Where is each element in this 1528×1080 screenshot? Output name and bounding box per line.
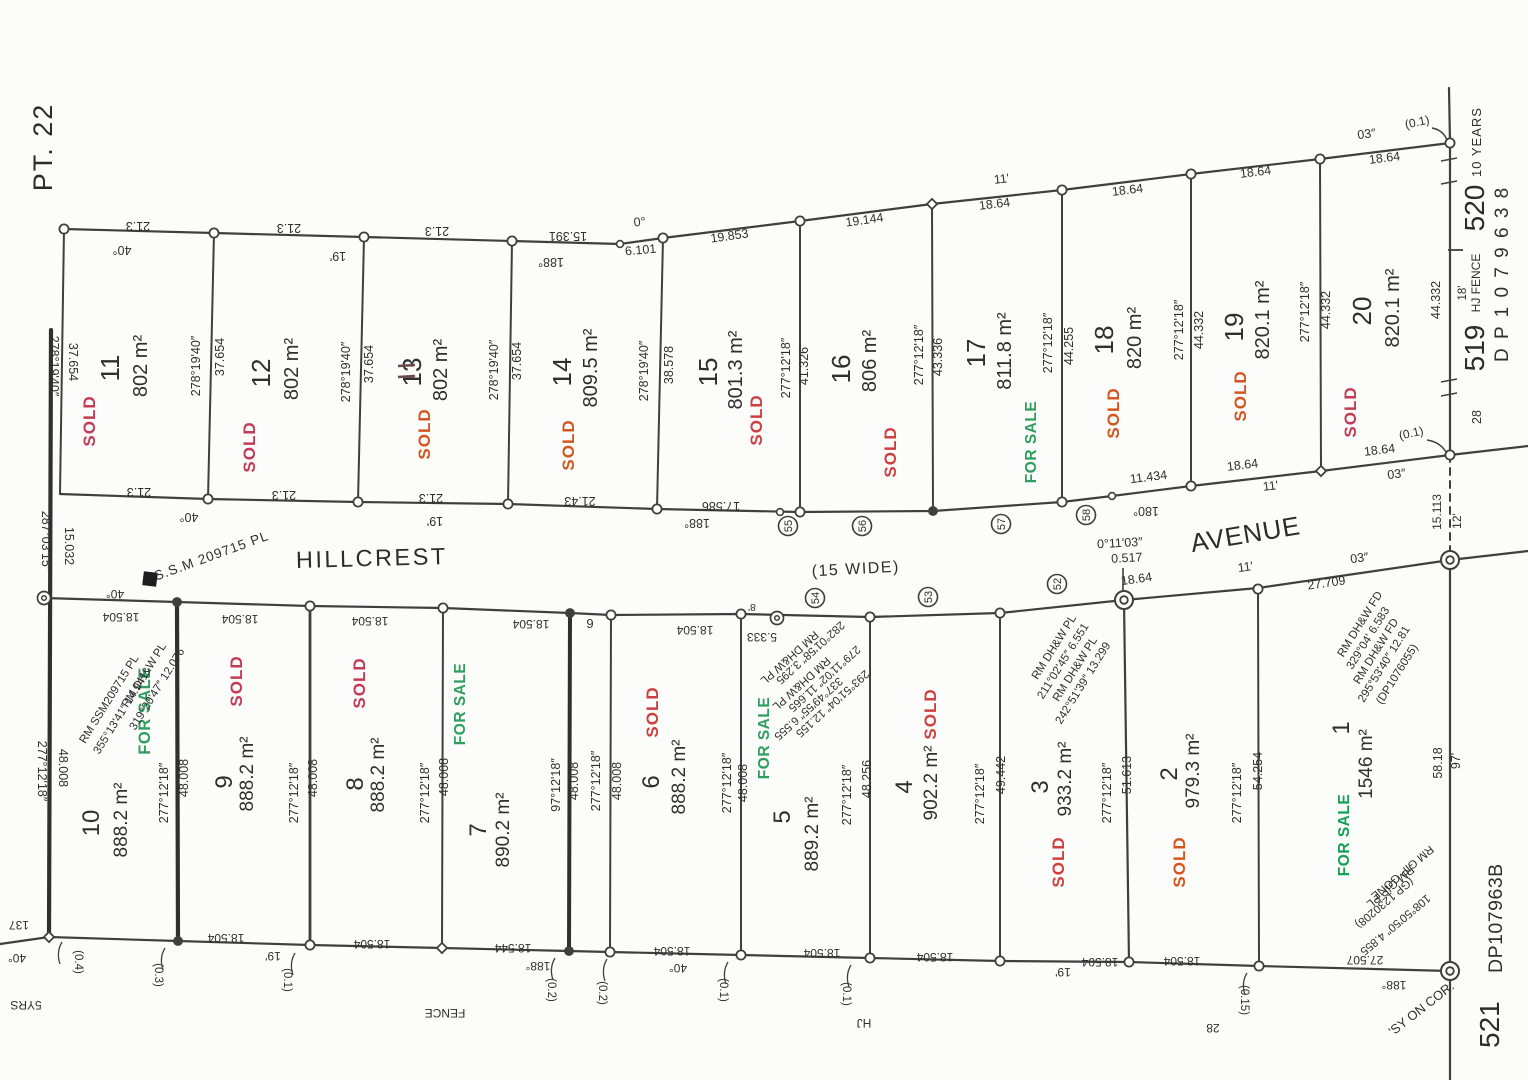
svg-text:58.18: 58.18 [1431,747,1445,778]
svg-text:277°12'18″: 277°12'18″ [1100,762,1114,823]
svg-text:278°19'40″: 278°19'40″ [487,339,501,400]
svg-text:277°12'18″: 277°12'18″ [157,762,171,823]
svg-text:12: 12 [246,359,276,388]
svg-text:15.391: 15.391 [549,229,587,243]
svg-text:0°11'03″: 0°11'03″ [1097,535,1144,551]
svg-text:15.113: 15.113 [1430,494,1444,530]
svg-text:8': 8' [748,601,756,613]
svg-text:820 m²: 820 m² [1124,307,1146,370]
svg-text:10: 10 [78,810,105,837]
svg-text:18.504: 18.504 [1163,954,1200,968]
svg-text:SOLD: SOLD [1104,387,1123,438]
svg-text:801.3 m²: 801.3 m² [725,330,747,409]
svg-text:902.2 m²: 902.2 m² [921,746,942,821]
svg-text:55: 55 [783,520,795,532]
svg-text:18.504: 18.504 [1081,955,1118,969]
svg-text:20: 20 [1347,297,1377,326]
svg-text:802 m²: 802 m² [130,335,152,398]
svg-text:11: 11 [95,355,125,382]
svg-text:SOLD: SOLD [350,657,369,708]
svg-text:37.654: 37.654 [362,345,376,383]
svg-text:43.336: 43.336 [931,338,945,376]
svg-text:6: 6 [638,775,665,788]
svg-text:277°12'18″: 277°12'18″ [1041,312,1055,373]
svg-text:277°12'18″: 277°12'18″ [973,763,987,824]
svg-text:188°: 188° [538,255,564,269]
svg-text:520: 520 [1459,185,1490,232]
svg-text:277°12'18″: 277°12'18″ [1298,281,1312,342]
svg-text:277°12'18″: 277°12'18″ [779,337,793,398]
svg-text:DP107963B: DP107963B [1485,863,1507,973]
svg-text:277°12'18″: 277°12'18″ [589,750,603,811]
svg-text:19: 19 [1219,313,1249,342]
svg-text:802 m²: 802 m² [430,339,452,402]
svg-text:6.101: 6.101 [624,242,656,259]
svg-text:888.2 m²: 888.2 m² [111,783,132,858]
svg-text:188°: 188° [525,959,550,973]
svg-text:521: 521 [1474,1001,1505,1048]
svg-text:277°12'18″: 277°12'18″ [720,752,734,813]
svg-text:21.3: 21.3 [126,219,150,233]
svg-text:277°12'18″: 277°12'18″ [840,764,854,825]
svg-text:15.032: 15.032 [62,527,76,565]
svg-text:21.43: 21.43 [564,494,595,508]
svg-text:58: 58 [1081,509,1093,521]
svg-text:40°: 40° [180,510,199,524]
svg-text:SOLD: SOLD [240,421,259,472]
svg-text:(0.1): (0.1) [281,968,293,992]
svg-text:40°: 40° [8,951,26,965]
svg-text:0°: 0° [633,215,646,230]
svg-text:21.3: 21.3 [419,491,443,505]
svg-text:13: 13 [397,358,427,387]
svg-text:14: 14 [547,358,577,387]
svg-text:5YRS: 5YRS [10,998,41,1012]
svg-text:41.326: 41.326 [797,347,811,385]
svg-text:18': 18' [1457,286,1469,301]
svg-text:5: 5 [769,810,796,823]
svg-text:820.1 m²: 820.1 m² [1252,280,1274,359]
svg-text:SOLD: SOLD [643,686,662,737]
svg-text:44.332: 44.332 [1429,281,1443,319]
svg-text:9: 9 [586,616,593,631]
svg-text:278°19'40″: 278°19'40″ [339,341,353,402]
svg-text:10 YEARS: 10 YEARS [1469,107,1484,177]
svg-text:03″: 03″ [1387,466,1407,482]
svg-text:SOLD: SOLD [1341,386,1360,437]
svg-text:SOLD: SOLD [80,395,99,446]
svg-text:37.654: 37.654 [66,343,80,381]
svg-text:28: 28 [1470,410,1484,424]
svg-text:3: 3 [1027,780,1054,793]
svg-text:48.008: 48.008 [610,762,624,800]
svg-text:21.3: 21.3 [425,224,449,238]
svg-text:97': 97' [1449,753,1463,769]
svg-text:15: 15 [693,358,723,387]
svg-text:2: 2 [1156,767,1183,780]
svg-text:54: 54 [810,592,822,604]
svg-text:12': 12' [1450,513,1464,529]
svg-text:18.504: 18.504 [916,950,953,964]
svg-text:888.2 m²: 888.2 m² [368,738,389,813]
svg-text:18.504: 18.504 [512,617,549,631]
svg-text:38.578: 38.578 [662,346,676,384]
svg-text:48.008: 48.008 [56,749,70,787]
svg-text:48.008: 48.008 [567,762,581,800]
svg-text:11': 11' [1237,559,1254,575]
svg-text:180°: 180° [1133,504,1159,518]
svg-text:40°: 40° [113,243,132,257]
svg-text:18.504: 18.504 [351,614,388,628]
svg-text:52: 52 [1052,578,1064,590]
svg-text:278°19'40″: 278°19'40″ [189,335,203,396]
svg-text:519: 519 [1459,325,1490,372]
svg-text:18.504: 18.504 [221,612,258,626]
svg-text:SOLD: SOLD [1049,836,1068,887]
svg-text:SOLD: SOLD [1170,836,1189,887]
svg-text:5.333: 5.333 [747,630,777,644]
svg-text:11': 11' [1262,478,1279,494]
svg-text:21.3: 21.3 [127,485,151,499]
svg-text:933.2 m²: 933.2 m² [1055,742,1076,817]
svg-text:18.504: 18.504 [676,623,713,637]
svg-text:18.504: 18.504 [353,937,390,951]
svg-text:18.544: 18.544 [494,941,531,955]
svg-text:FOR SALE: FOR SALE [1336,794,1353,876]
svg-text:40°: 40° [106,587,124,601]
svg-text:37.654: 37.654 [213,338,227,376]
svg-text:54.254: 54.254 [1251,752,1265,790]
svg-text:53: 53 [923,591,935,603]
svg-text:18.504: 18.504 [653,944,690,958]
svg-text:HILLCREST: HILLCREST [296,543,448,573]
svg-text:888.2 m²: 888.2 m² [669,740,690,815]
svg-text:44.332: 44.332 [1319,291,1333,329]
svg-text:(0.4): (0.4) [72,950,84,974]
svg-text:SOLD: SOLD [921,688,940,739]
svg-text:19': 19' [265,949,281,963]
svg-text:37.654: 37.654 [510,342,524,380]
svg-text:889.2 m²: 889.2 m² [802,797,823,872]
svg-text:21.3: 21.3 [277,221,301,235]
svg-text:18.504: 18.504 [207,931,244,945]
svg-text:48.008: 48.008 [306,759,320,797]
svg-text:49.442: 49.442 [994,756,1008,794]
svg-text:1546 m²: 1546 m² [1356,729,1377,799]
svg-text:48.008: 48.008 [177,759,191,797]
svg-text:48.008: 48.008 [736,764,750,802]
svg-text:18.504: 18.504 [803,946,840,960]
svg-text:48.008: 48.008 [437,758,451,796]
svg-text:890.2 m²: 890.2 m² [493,793,514,868]
svg-text:277°12'18″: 277°12'18″ [287,762,301,823]
svg-text:16: 16 [826,355,856,384]
svg-text:806 m²: 806 m² [859,330,881,393]
svg-text:D P 1 0 7 9 6 3 8: D P 1 0 7 9 6 3 8 [1492,186,1513,362]
svg-text:(0.1): (0.1) [717,978,729,1002]
svg-text:277°12'18″: 277°12'18″ [1172,299,1186,360]
svg-text:19': 19' [1055,965,1071,979]
svg-text:137: 137 [9,918,29,932]
svg-text:19': 19' [330,249,346,263]
svg-text:SOLD: SOLD [881,426,900,477]
svg-text:18: 18 [1089,326,1119,355]
svg-text:278°19'40″: 278°19'40″ [47,336,61,397]
svg-text:811.8 m²: 811.8 m² [994,312,1016,390]
svg-text:979.3 m²: 979.3 m² [1183,734,1204,809]
svg-text:SOLD: SOLD [559,419,578,470]
svg-text:SOLD: SOLD [227,655,246,706]
svg-text:1: 1 [1328,721,1355,734]
svg-text:9: 9 [211,775,238,788]
svg-text:PT. 22: PT. 22 [28,103,58,192]
svg-text:FENCE: FENCE [425,1006,466,1020]
svg-text:21.3: 21.3 [272,488,296,502]
svg-text:888.2 m²: 888.2 m² [237,737,258,812]
svg-text:FOR SALE: FOR SALE [452,663,469,745]
svg-text:7: 7 [465,823,492,836]
svg-text:277°12'18″: 277°12'18″ [35,741,49,802]
svg-text:44.332: 44.332 [1192,311,1206,349]
svg-text:28: 28 [1206,1021,1220,1035]
svg-text:SOLD: SOLD [747,394,766,445]
svg-text:8: 8 [342,777,369,790]
svg-text:277°12'18″: 277°12'18″ [418,762,432,823]
svg-text:277°12'18″: 277°12'18″ [912,324,926,385]
svg-text:97°12'18″: 97°12'18″ [549,758,563,812]
svg-text:18.504: 18.504 [102,610,139,624]
svg-text:0.517: 0.517 [1111,550,1143,566]
svg-text:51.613: 51.613 [1120,756,1134,794]
svg-text:SOLD: SOLD [1231,370,1250,421]
svg-text:03″: 03″ [1357,126,1377,142]
svg-text:278°19'40″: 278°19'40″ [637,340,651,401]
svg-text:SOLD: SOLD [415,408,434,459]
svg-text:57: 57 [996,518,1008,530]
svg-text:188°: 188° [1381,978,1406,992]
svg-text:802 m²: 802 m² [281,338,303,401]
svg-text:HJ FENCE: HJ FENCE [1469,254,1483,313]
svg-text:40°: 40° [669,961,687,975]
svg-text:11': 11' [993,171,1010,187]
svg-text:4: 4 [891,780,918,793]
svg-text:FOR SALE: FOR SALE [1023,401,1040,483]
svg-text:(0.1): (0.1) [840,982,852,1006]
svg-text:820.1 m²: 820.1 m² [1382,268,1404,347]
svg-text:FOR SALE: FOR SALE [756,697,773,779]
svg-text:56: 56 [857,520,869,532]
svg-text:(0.2): (0.2) [596,981,608,1005]
svg-text:19': 19' [427,514,443,528]
svg-text:44.255: 44.255 [1062,327,1076,365]
svg-text:HJ: HJ [857,1016,872,1030]
svg-text:03″: 03″ [1349,550,1370,566]
svg-text:48.256: 48.256 [860,760,874,798]
svg-text:287°03'15″: 287°03'15″ [39,511,53,572]
svg-text:809.5 m²: 809.5 m² [580,328,602,407]
svg-text:277°12'18″: 277°12'18″ [1230,762,1244,823]
svg-text:17.586: 17.586 [702,499,740,513]
svg-text:17: 17 [961,339,991,368]
svg-text:(0.2): (0.2) [545,978,557,1002]
svg-text:188°: 188° [684,516,710,530]
